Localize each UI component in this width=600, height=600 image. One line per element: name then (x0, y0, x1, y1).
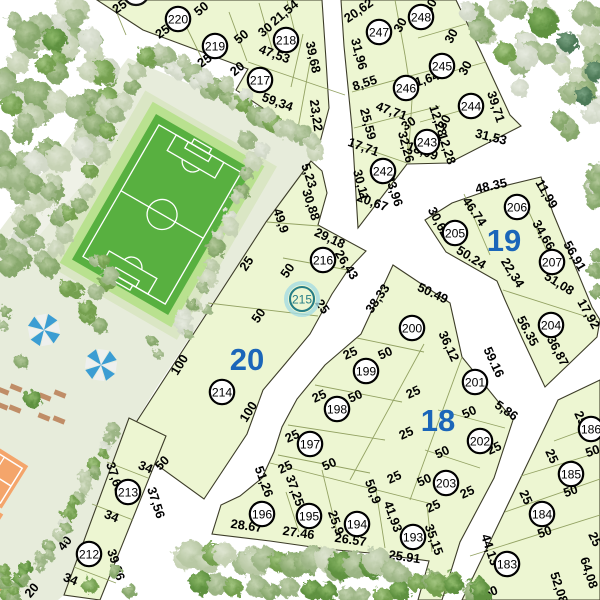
svg-text:20: 20 (230, 342, 264, 377)
svg-text:213: 213 (118, 485, 139, 499)
svg-text:19: 19 (487, 223, 521, 258)
svg-text:183: 183 (497, 557, 518, 571)
svg-text:185: 185 (561, 467, 582, 481)
svg-text:205: 205 (445, 226, 466, 240)
svg-text:248: 248 (411, 10, 432, 24)
svg-text:194: 194 (347, 517, 368, 531)
svg-text:184: 184 (532, 507, 553, 521)
svg-text:200: 200 (402, 321, 423, 335)
svg-text:196: 196 (252, 507, 273, 521)
svg-text:201: 201 (465, 375, 486, 389)
svg-text:199: 199 (356, 364, 377, 378)
svg-text:219: 219 (205, 39, 226, 53)
svg-text:204: 204 (541, 318, 562, 332)
svg-text:243: 243 (417, 135, 438, 149)
svg-text:198: 198 (327, 402, 348, 416)
svg-text:247: 247 (369, 25, 390, 39)
svg-text:217: 217 (250, 73, 271, 87)
svg-text:218: 218 (276, 33, 297, 47)
svg-text:220: 220 (168, 12, 189, 26)
svg-text:203: 203 (436, 476, 457, 490)
svg-text:245: 245 (432, 59, 453, 73)
svg-text:186: 186 (581, 422, 600, 436)
svg-text:215: 215 (292, 292, 312, 306)
svg-text:246: 246 (396, 81, 417, 95)
svg-text:214: 214 (212, 385, 233, 399)
svg-text:206: 206 (507, 200, 528, 214)
svg-text:244: 244 (461, 99, 482, 113)
svg-text:207: 207 (542, 255, 563, 269)
svg-text:212: 212 (79, 547, 100, 561)
svg-text:242: 242 (373, 164, 394, 178)
svg-text:195: 195 (299, 509, 320, 523)
svg-text:193: 193 (403, 530, 424, 544)
svg-text:18: 18 (421, 403, 455, 438)
svg-text:197: 197 (300, 437, 321, 451)
svg-text:202: 202 (470, 434, 491, 448)
svg-text:216: 216 (313, 253, 334, 267)
